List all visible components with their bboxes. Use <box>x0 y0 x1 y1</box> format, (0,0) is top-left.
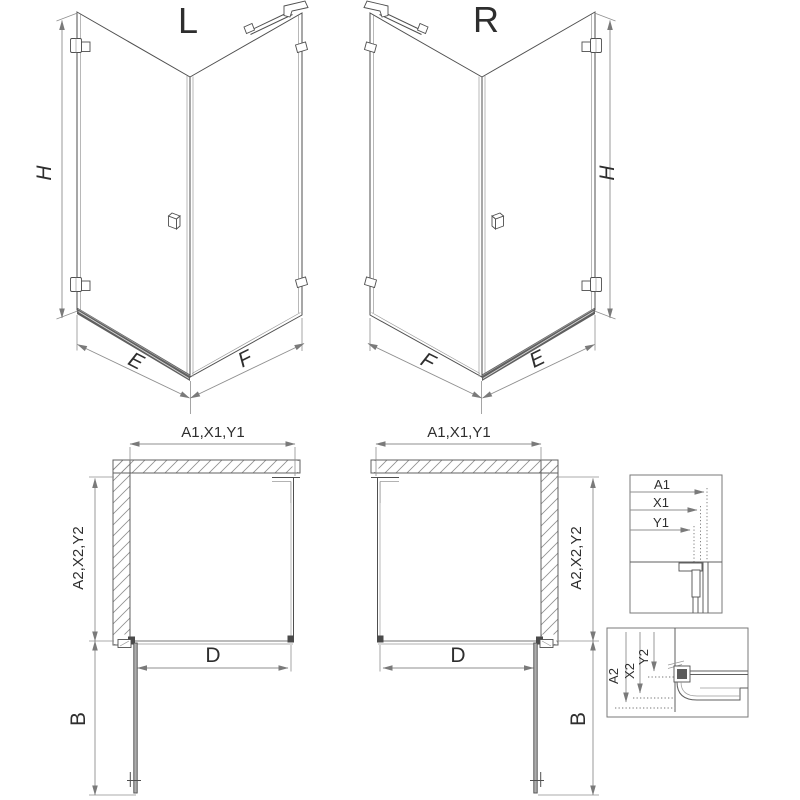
label-height-right: H <box>596 165 619 181</box>
label-plan-depth-left: A2,X2,Y2 <box>70 526 87 589</box>
label-detail-y1: Y1 <box>653 515 669 530</box>
wall-left <box>113 460 130 645</box>
label-detail-a2: A2 <box>606 668 621 684</box>
plan-view-left <box>89 444 300 795</box>
wall-top <box>371 460 558 473</box>
label-door-width-left: E <box>124 348 148 375</box>
shower-enclosure-drawing: L R H E F H F E <box>0 0 800 800</box>
bottom-profile-section <box>668 661 748 700</box>
label-door-opening-right: D <box>450 644 465 667</box>
shower-3d-left <box>57 1 309 414</box>
shower-3d-right <box>364 1 616 414</box>
label-detail-x1: X1 <box>653 495 669 510</box>
label-plan-depth-right: A2,X2,Y2 <box>568 526 585 589</box>
label-detail-x2: X2 <box>622 663 637 679</box>
label-door-opening-left: D <box>205 644 220 667</box>
label-door-swing-right: B <box>567 712 590 726</box>
label-detail-y2: Y2 <box>636 649 651 665</box>
label-plan-width-right: A1,X1,Y1 <box>427 424 490 441</box>
label-door-swing-left: B <box>67 712 90 726</box>
plan-dimension-depth-left <box>89 477 114 641</box>
label-variant-left: L <box>178 0 198 41</box>
label-side-width-left: F <box>234 345 257 372</box>
plan-view-right <box>371 444 599 795</box>
label-height-left: H <box>33 165 56 181</box>
label-plan-width-left: A1,X1,Y1 <box>181 424 244 441</box>
label-door-width-right: E <box>526 345 550 372</box>
label-detail-a1: A1 <box>654 477 670 492</box>
technical-drawing-page: L R H E F H F E <box>0 0 800 800</box>
wall-right <box>541 460 558 645</box>
label-variant-right: R <box>473 0 499 40</box>
detail-box-width: A1 X1 Y1 <box>630 475 722 613</box>
label-side-width-right: F <box>417 348 440 375</box>
plan-dimension-swing-left <box>89 641 136 795</box>
wall-top <box>113 460 300 473</box>
detail-box-depth: A2 X2 Y2 <box>606 628 748 717</box>
